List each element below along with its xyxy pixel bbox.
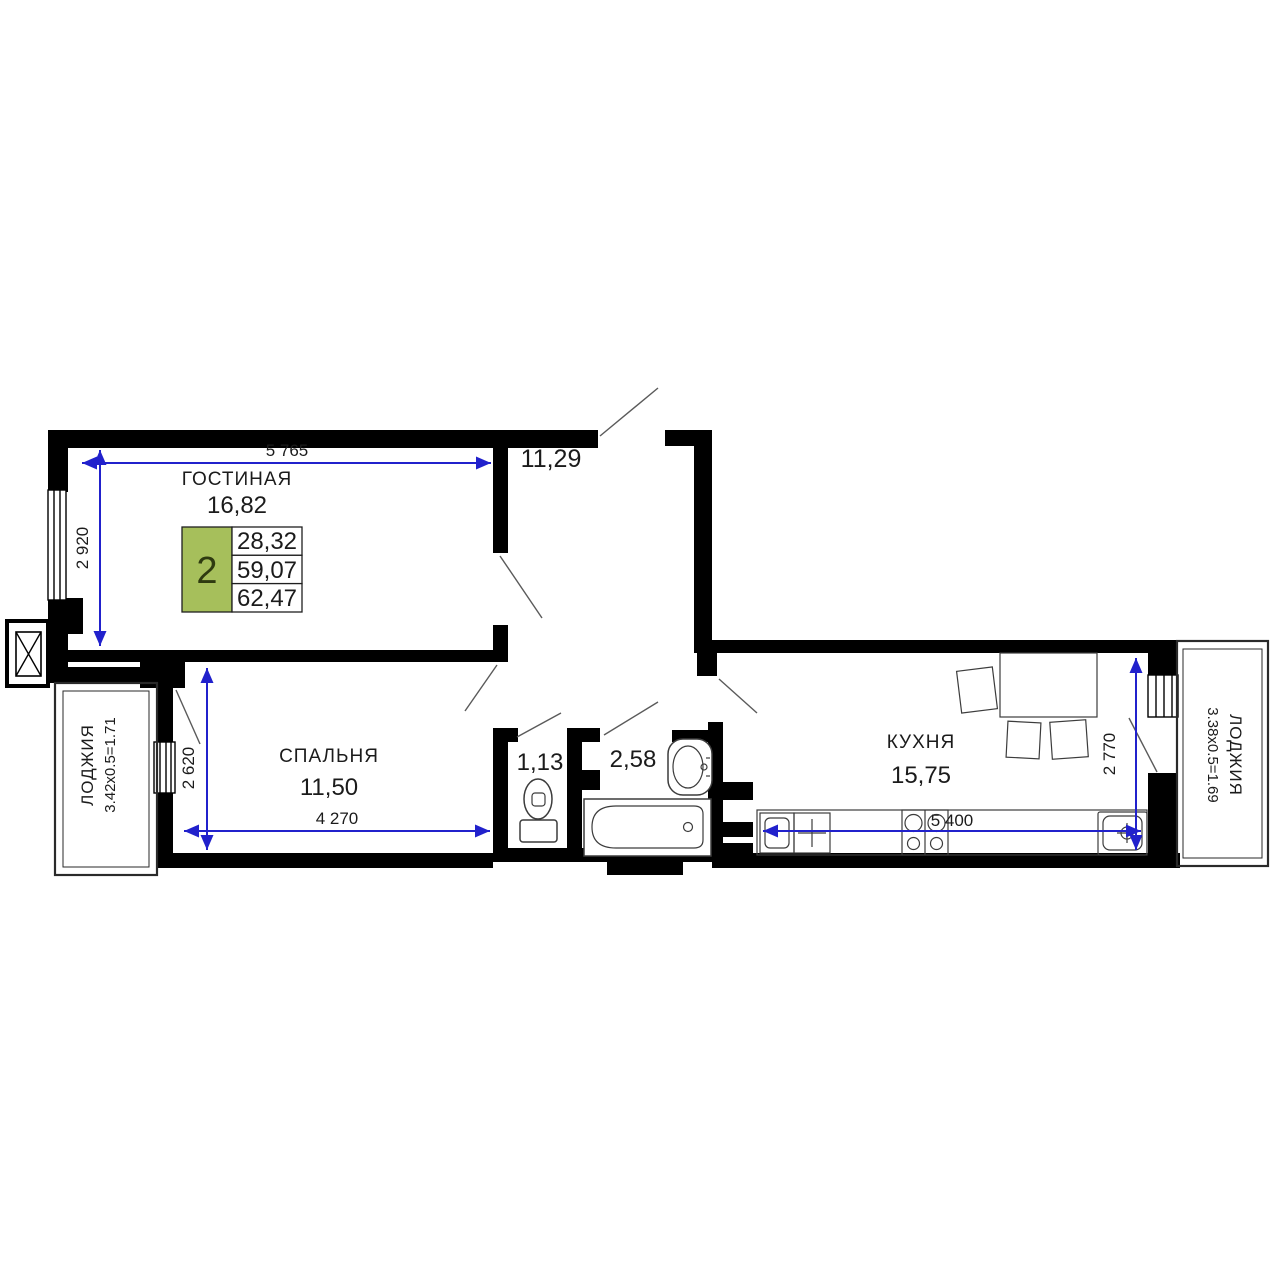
living-room-name: ГОСТИНАЯ [182,469,292,490]
bathroom-sink-icon [668,739,712,795]
kitchen-window [1148,675,1178,717]
bedroom-balcony-door-swing [176,690,200,744]
loggia-right-outline [1177,641,1268,866]
dim-5765-label: 5 765 [266,441,309,460]
dim-4270-label: 4 270 [316,809,359,828]
bathroom-door-swing [604,702,658,735]
apartment-info-badge: 2 28,32 59,07 62,47 [182,527,302,612]
bathtub-icon [584,799,711,856]
badge-area-2: 59,07 [237,557,297,584]
kitchen-chairs [957,667,1089,759]
bathroom-area: 2,58 [610,746,657,773]
dimension-2770: 2 770 [1100,658,1143,850]
kitchen-area: 15,75 [891,762,951,789]
entrance-door-swing [600,388,658,436]
floor-plan-drawing: 5 765 2 920 2 620 4 270 5 400 2 770 2 [0,0,1280,1280]
elevator-shaft-icon [7,621,48,686]
badge-area-1: 28,32 [237,528,297,555]
living-room-area: 16,82 [207,492,267,519]
living-room-door-swing [500,556,542,618]
dim-2920-label: 2 920 [73,527,92,570]
badge-room-count: 2 [196,550,217,592]
loggia-right-formula: 3.38х0.5=1.69 [1204,707,1221,803]
dimension-2620: 2 620 [179,668,214,850]
wc-door-swing [517,713,561,737]
hall-area: 11,29 [521,445,582,473]
bedroom-area: 11,50 [300,774,358,801]
dim-5400-label: 5 400 [931,811,974,830]
kitchen-table [1000,653,1097,717]
dim-2620-label: 2 620 [179,747,198,790]
dimension-4270: 4 270 [184,809,490,838]
loggia-left-formula: 3.42х0.5=1.71 [102,717,119,813]
badge-area-3: 62,47 [237,585,297,612]
kitchen-name: КУХНЯ [887,732,955,753]
kitchen-balcony-door-swing [1129,718,1157,772]
floor-plan-canvas: 5 765 2 920 2 620 4 270 5 400 2 770 2 [0,0,1280,1280]
dim-2770-label: 2 770 [1100,733,1119,776]
loggia-right-name: ЛОДЖИЯ [1226,714,1245,796]
loggia-left-name: ЛОДЖИЯ [78,724,97,806]
living-room-window [48,490,66,600]
kitchen-sink-right-icon [1098,812,1147,855]
kitchen-door-swing [719,679,757,713]
bedroom-door-swing [465,665,497,711]
bedroom-name: СПАЛЬНЯ [279,746,379,767]
wc-area: 1,13 [517,749,564,776]
toilet-icon [520,779,557,842]
